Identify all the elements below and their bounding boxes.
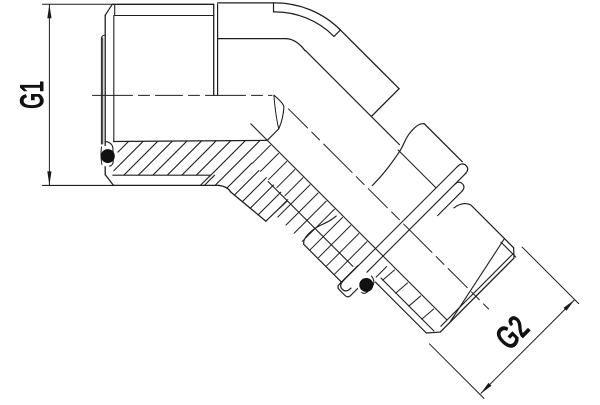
svg-text:G1: G1 bbox=[14, 81, 52, 109]
